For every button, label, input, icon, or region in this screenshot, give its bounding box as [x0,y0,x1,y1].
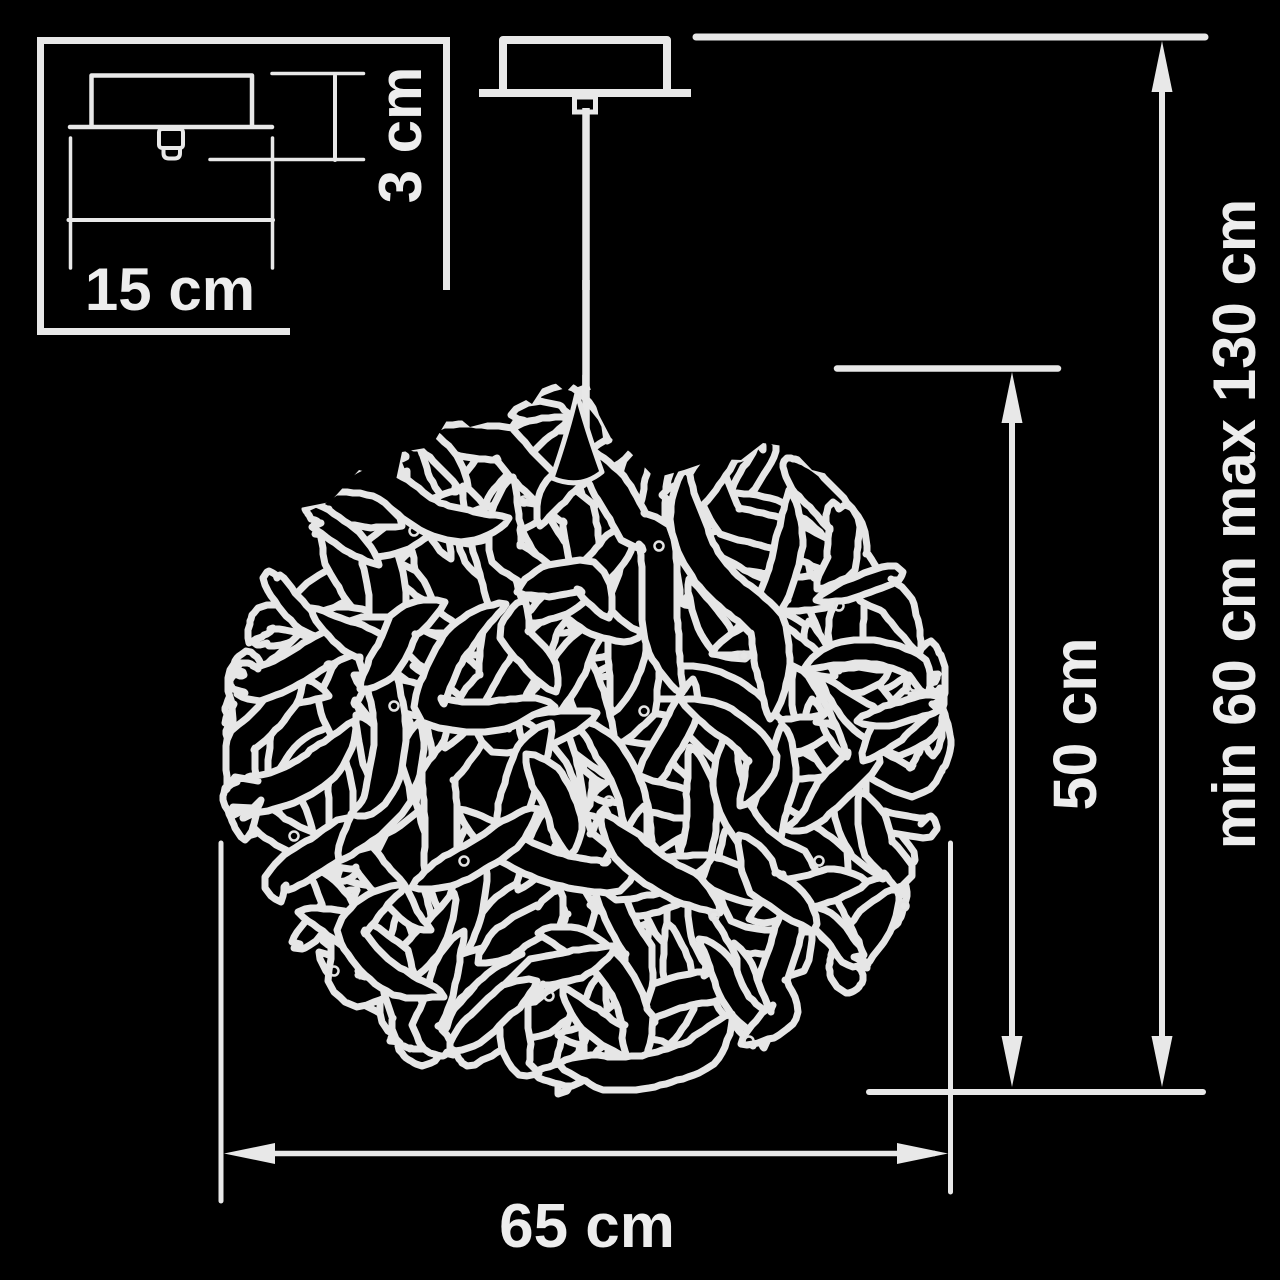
svg-text:min 60 cm max 130 cm: min 60 cm max 130 cm [1201,199,1268,849]
svg-text:50 cm: 50 cm [1041,638,1109,811]
svg-text:15 cm: 15 cm [85,256,255,323]
svg-text:65 cm: 65 cm [499,1192,675,1261]
svg-text:3 cm: 3 cm [367,67,434,204]
